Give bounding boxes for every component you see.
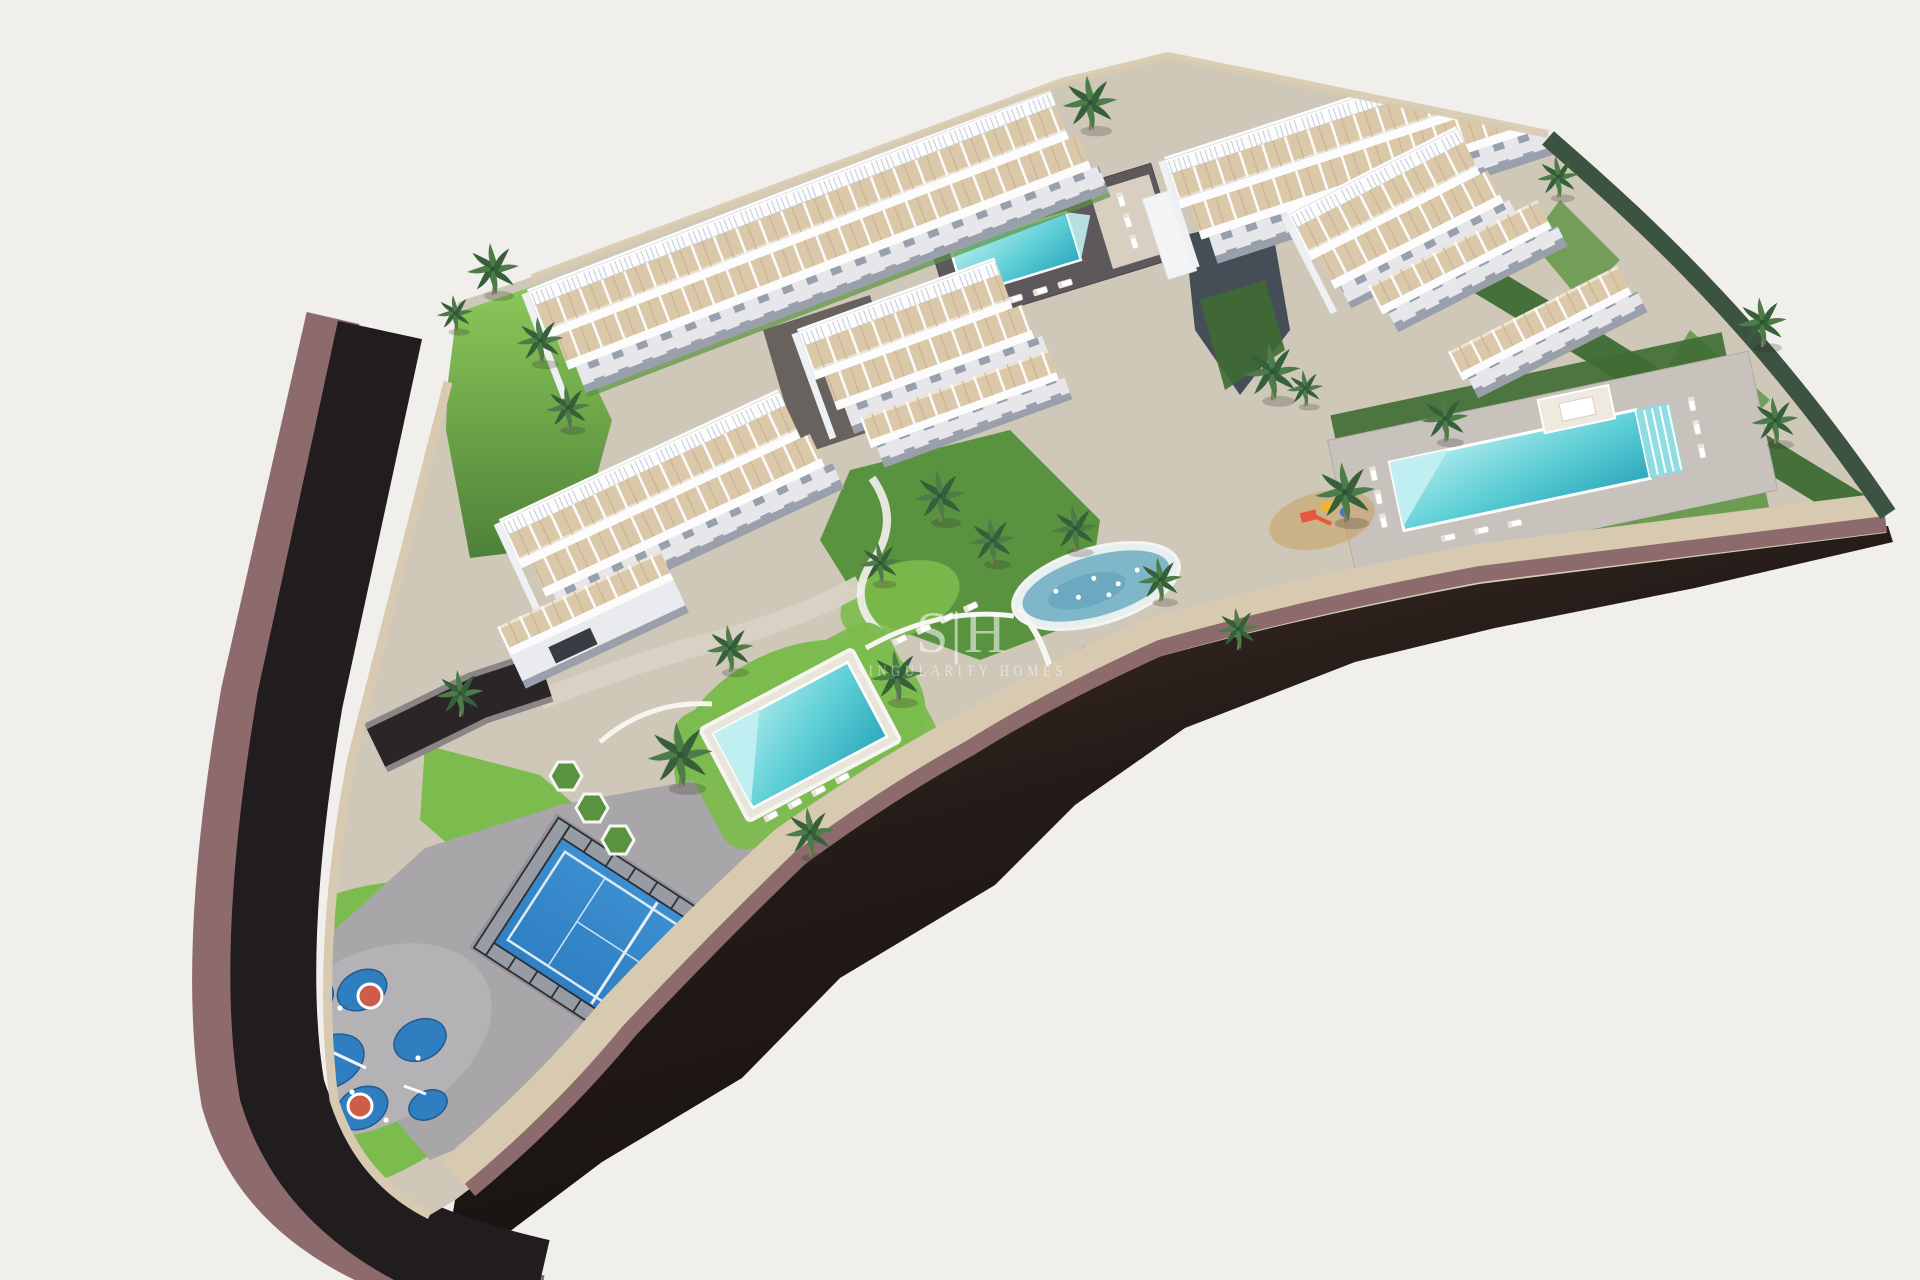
site-plan-render: S|H SINGULARITY HOMES bbox=[0, 0, 1920, 1280]
watermark-logo: S|H bbox=[916, 600, 1008, 665]
carousel-red bbox=[358, 984, 382, 1008]
carousel-red-2 bbox=[348, 1094, 372, 1118]
watermark-name: SINGULARITY HOMES bbox=[857, 663, 1067, 680]
aerial-3d-render: S|H SINGULARITY HOMES bbox=[0, 0, 1920, 1280]
